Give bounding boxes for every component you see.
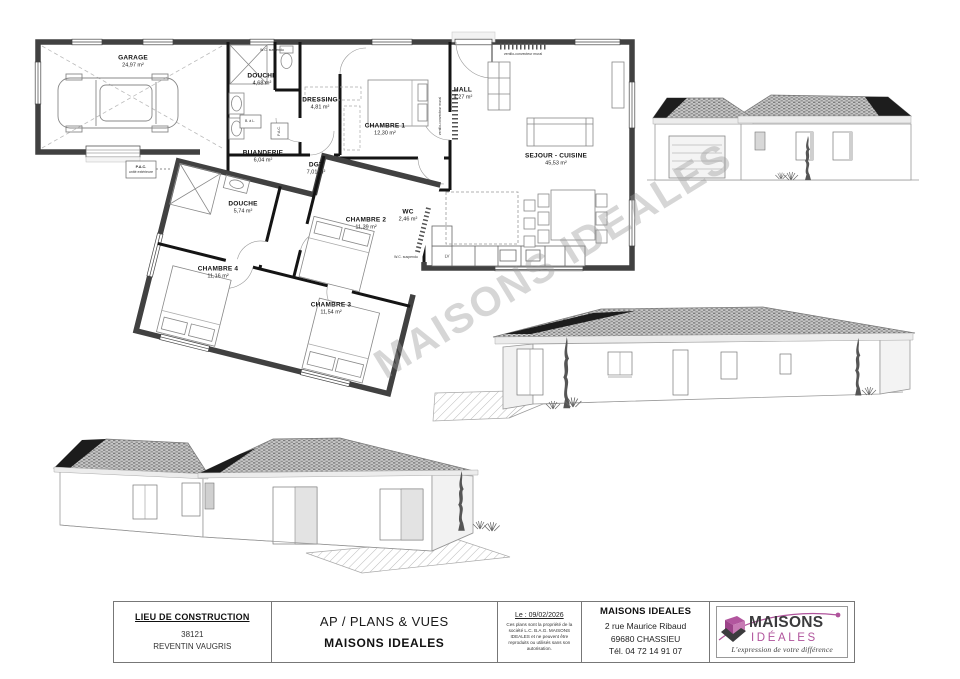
- title-block-logo-cell: MAISONS IDÉALES L'expression de votre di…: [710, 602, 854, 662]
- copyright-notice: Ces plans sont la propriété de la sociét…: [502, 622, 576, 653]
- plan-document-page: MAISONS IDEALES GARAGE 24,97 m² DOUCHE 4…: [0, 0, 960, 679]
- location-city: REVENTIN VAUGRIS: [153, 641, 231, 653]
- plan-type: AP / PLANS & VUES: [320, 614, 449, 629]
- location-heading: LIEU DE CONSTRUCTION: [135, 612, 250, 622]
- company-logo: MAISONS IDÉALES L'expression de votre di…: [716, 606, 848, 658]
- logo-graphic: MAISONS IDÉALES: [718, 610, 846, 644]
- floor-plan-drawing: [0, 0, 960, 679]
- company-address-1: 2 rue Maurice Ribaud: [605, 620, 686, 633]
- logo-tagline: L'expression de votre différence: [731, 645, 833, 654]
- logo-word-ideales: IDÉALES: [751, 631, 818, 644]
- render-side-view: [433, 307, 915, 421]
- title-block-location-cell: LIEU DE CONSTRUCTION 38121 REVENTIN VAUG…: [114, 602, 272, 662]
- plan-date: Le : 09/02/2026: [515, 612, 564, 619]
- title-block-company-cell: MAISONS IDEALES 2 rue Maurice Ribaud 696…: [582, 602, 711, 662]
- company-address-2: 69680 CHASSIEU: [611, 633, 680, 646]
- title-block-plan-cell: AP / PLANS & VUES MAISONS IDEALES: [272, 602, 498, 662]
- title-block: LIEU DE CONSTRUCTION 38121 REVENTIN VAUG…: [113, 601, 855, 663]
- title-block-date-cell: Le : 09/02/2026 Ces plans sont la propri…: [498, 602, 582, 662]
- logo-house-icon: [721, 616, 746, 642]
- location-postal-code: 38121: [181, 629, 203, 641]
- company-name: MAISONS IDEALES: [600, 606, 691, 617]
- render-rear-view: [54, 438, 510, 573]
- logo-word-maisons: MAISONS: [749, 614, 823, 631]
- render-front-view: [647, 95, 919, 180]
- company-phone: Tél. 04 72 14 91 07: [609, 645, 682, 658]
- plan-company: MAISONS IDEALES: [324, 636, 444, 650]
